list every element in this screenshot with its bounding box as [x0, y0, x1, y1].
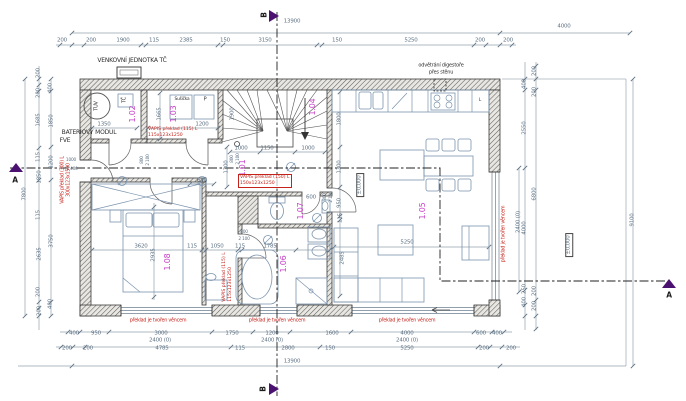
room-number-living: 1.05 — [419, 202, 427, 219]
dim-label: 640 — [197, 178, 207, 184]
dim-label: 3150 — [258, 38, 271, 44]
section-a-marker-left — [9, 163, 23, 172]
dim-label: 2935 — [151, 248, 157, 261]
dim-label: 1050 — [210, 244, 223, 250]
dim-label: 115 — [36, 152, 42, 162]
dim-label: 950 — [91, 331, 101, 337]
dim-label: 2800 — [281, 346, 294, 352]
dim-left-total: 7800 — [22, 187, 28, 200]
dim-label: 150 — [325, 346, 335, 352]
dim-label: 1150 — [260, 146, 273, 152]
lintel-note: překlad je tvořen věncem — [379, 320, 436, 325]
dim-label: 200 — [532, 286, 538, 296]
dim-label: 400 — [492, 331, 502, 337]
vent-note-line2: přes stěnu — [429, 71, 453, 76]
dim-label: 115 — [338, 213, 344, 223]
dim-label: 1900 — [230, 107, 236, 120]
dim-label: 2385 — [179, 38, 192, 44]
dim-label: 600 — [476, 331, 486, 337]
vent-note-line1: odvětrání digestoře — [418, 64, 463, 69]
dim-label: 2635 — [37, 247, 43, 260]
dim-label: 115 — [36, 210, 42, 220]
dim-label: 4000 — [400, 331, 413, 337]
lintel-note: překlad je tvořen věncem — [249, 320, 306, 325]
door-dim-label: 2 100 — [330, 191, 334, 202]
room-number-tech: 1.02 — [129, 105, 137, 122]
dim-label: 2400 (0) — [149, 338, 171, 344]
dim-label: 400 — [48, 83, 54, 93]
dim-label: 200 — [503, 38, 513, 44]
door-dim-label: 2 100 — [147, 154, 151, 165]
section-a-label-left: A — [12, 176, 18, 184]
vapis-note-line: 115x123x1250 — [148, 133, 198, 139]
dim-label: 5250 — [400, 240, 413, 246]
dim-window-label: 2400 (0) — [516, 211, 522, 233]
vapis-note-line: 150x123x1250 — [240, 181, 290, 187]
tuv-tank-label: TUV — [95, 101, 100, 111]
dryer-label: Sušička — [175, 98, 190, 102]
dim-label: 2550 — [522, 121, 528, 134]
section-b-marker-top — [269, 10, 279, 22]
dim-label: 115 — [235, 346, 245, 352]
dim-label: 400 — [69, 331, 79, 337]
room-number-utility: 1.03 — [170, 105, 178, 122]
dim-label: 4000 — [522, 221, 528, 234]
door-dim-label: 1000 — [66, 159, 76, 163]
dim-label: 200 — [532, 66, 538, 76]
dim-label: 200 — [532, 301, 538, 311]
dim-top-total: 13900 — [284, 19, 301, 25]
vapis-note-115: VAPIS překlad (115) L 115x123x1250 — [148, 127, 198, 139]
dim-label: 200 — [86, 38, 96, 44]
dim-label: 200 — [36, 287, 42, 297]
dim-label: 5250 — [404, 38, 417, 44]
battery-fve-label: FVE — [60, 138, 71, 144]
fridge-label: L — [479, 99, 481, 103]
dim-label: 115 — [187, 244, 197, 250]
dim-label: 2400 (0) — [261, 338, 283, 344]
dim-label: 1685 — [36, 113, 42, 126]
level-marker-outside: ±0,000 — [565, 233, 573, 257]
dim-label: 150 — [332, 38, 342, 44]
dim-label: 600 — [306, 195, 316, 201]
lintel-note: překlad je tvořen věncem — [130, 320, 187, 325]
door-dim-label: 2 100 — [237, 153, 241, 164]
door-dim-label: 2 400 — [66, 168, 77, 172]
dim-label: 115 — [149, 38, 159, 44]
dim-label: 1350 — [97, 122, 110, 128]
dim-label: 1300 — [337, 160, 343, 173]
dim-label: 200 — [479, 346, 489, 352]
vapis-note-150: VAPIS překlad (150) L 150x123x1250 — [238, 174, 292, 188]
dim-label: 3000 — [154, 331, 167, 337]
dim-label: 2485 — [340, 251, 346, 264]
dim-label: 950 — [337, 198, 343, 208]
lintel-note-right: překlad je tvořen věncem — [503, 206, 508, 263]
dim-label: 150 — [220, 38, 230, 44]
dim-label: 1600 — [325, 331, 338, 337]
dim-label: 1200 — [265, 331, 278, 337]
dim-label: 200 — [62, 346, 72, 352]
dim-label: 400 — [48, 299, 54, 309]
dim-label: 6800 — [532, 187, 538, 200]
door-dim-label: 800 — [240, 231, 248, 235]
dim-label: 200 — [532, 87, 538, 97]
battery-module-label: BATERIOVÝ MODUL — [62, 130, 117, 136]
dim-label: 200 — [36, 68, 42, 78]
dim-label: 250 — [522, 284, 528, 294]
door-dim-label: 800 — [324, 193, 328, 201]
door-dim-label: 2 100 — [238, 238, 249, 242]
vapis-note-line: 115x123x1250 — [228, 252, 234, 302]
dim-label: 400 — [522, 297, 528, 307]
heat-pump-label: TČ — [123, 97, 128, 103]
dim-label: 1785 — [263, 244, 276, 250]
room-number-bedroom: 1.08 — [164, 253, 172, 270]
dim-label: 2400 (0) — [396, 338, 418, 344]
dim-label: 1900 — [116, 38, 129, 44]
dim-label: 1665 — [157, 107, 163, 120]
dim-label: 1200 — [49, 155, 55, 168]
door-dim-label: 800 — [141, 156, 145, 164]
dim-bottom-total: 13900 — [284, 359, 301, 365]
washer-label: P — [204, 98, 207, 103]
dim-label: 1800 — [337, 112, 343, 125]
dim-label: 1000 — [301, 146, 314, 152]
level-marker-inside: ±0,000 — [356, 173, 364, 197]
dim-label: 1850 — [49, 114, 55, 127]
dim-right-total: 9100 — [630, 213, 636, 226]
room-number-bath: 1.06 — [280, 255, 288, 272]
door-dim-label: 800 — [231, 155, 235, 163]
dim-label: 1000 — [234, 146, 247, 152]
dim-label: 1750 — [225, 331, 238, 337]
outdoor-unit-label: VENKOVNÍ JEDNOTKA TČ — [97, 58, 166, 64]
room-number-wc: 1.07 — [297, 202, 305, 219]
dim-label: 5250 — [400, 346, 413, 352]
section-a-marker-right — [662, 279, 676, 288]
section-b-label-top: B — [260, 12, 268, 18]
dim-label: 3620 — [134, 244, 147, 250]
dim-label: 115 — [235, 244, 245, 250]
dim-label: 4785 — [155, 346, 168, 352]
dim-top-ext: 4000 — [557, 24, 570, 30]
dim-label: 200 — [37, 306, 43, 316]
dim-label: 3750 — [49, 234, 55, 247]
section-a-label-right: A — [666, 291, 672, 299]
dim-label: 400 — [522, 79, 528, 89]
dim-label: 200 — [83, 346, 93, 352]
dim-label: 200 — [475, 38, 485, 44]
dim-label: 200 — [36, 88, 42, 98]
section-b-label-bottom: B — [259, 386, 267, 392]
vapis-note-115-rotated: VAPIS překlad (115) L 115x123x1250 — [222, 252, 234, 302]
dim-label: 200 — [506, 346, 516, 352]
floor-plan-canvas: 13900 4000 200 200 1900 115 2385 150 315… — [0, 0, 686, 401]
section-b-marker-bottom — [269, 383, 279, 395]
room-number-stair: 1.04 — [309, 98, 317, 115]
dim-label: 1850 — [37, 170, 43, 183]
dim-label: 200 — [57, 38, 67, 44]
